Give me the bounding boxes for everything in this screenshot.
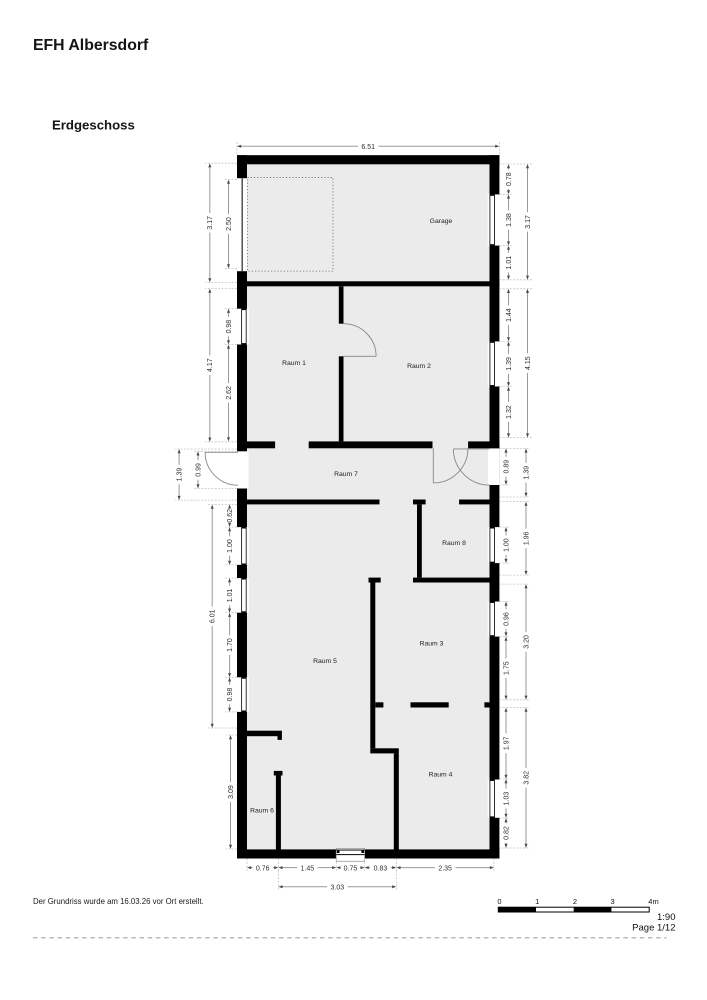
- svg-text:3.20: 3.20: [523, 635, 530, 649]
- svg-text:0.78: 0.78: [506, 172, 513, 186]
- svg-text:Raum 7: Raum 7: [334, 471, 358, 478]
- svg-text:0.98: 0.98: [226, 320, 233, 334]
- svg-text:3.82: 3.82: [523, 771, 530, 785]
- svg-text:1.00: 1.00: [227, 539, 234, 553]
- svg-text:Der Grundriss wurde am 16.03.2: Der Grundriss wurde am 16.03.26 vor Ort …: [33, 897, 204, 906]
- svg-text:0.96: 0.96: [503, 612, 510, 626]
- svg-text:3.09: 3.09: [228, 785, 235, 799]
- svg-text:1.97: 1.97: [503, 736, 510, 750]
- svg-text:Erdgeschoss: Erdgeschoss: [52, 118, 135, 133]
- svg-text:1.75: 1.75: [503, 661, 510, 675]
- svg-text:3.03: 3.03: [331, 885, 345, 892]
- svg-text:2.62: 2.62: [226, 386, 233, 400]
- svg-text:1.01: 1.01: [506, 256, 513, 270]
- svg-text:3.17: 3.17: [207, 216, 214, 230]
- svg-text:0.98: 0.98: [227, 688, 234, 702]
- svg-text:0.82: 0.82: [503, 826, 510, 840]
- svg-text:4.17: 4.17: [207, 358, 214, 372]
- svg-text:1.39: 1.39: [177, 468, 184, 482]
- svg-text:0.89: 0.89: [503, 460, 510, 474]
- svg-text:2: 2: [573, 897, 577, 906]
- svg-text:Page 1/12: Page 1/12: [632, 922, 675, 933]
- svg-text:1.70: 1.70: [227, 638, 234, 652]
- svg-text:0.62: 0.62: [227, 509, 234, 523]
- svg-text:1.00: 1.00: [503, 538, 510, 552]
- svg-text:1.38: 1.38: [506, 213, 513, 227]
- svg-text:1.39: 1.39: [506, 357, 513, 371]
- svg-text:Raum 6: Raum 6: [250, 807, 274, 814]
- svg-text:3.17: 3.17: [525, 215, 532, 229]
- svg-text:1.39: 1.39: [523, 466, 530, 480]
- svg-text:EFH Albersdorf: EFH Albersdorf: [33, 37, 149, 54]
- svg-text:1.96: 1.96: [523, 531, 530, 545]
- svg-text:1.45: 1.45: [301, 865, 315, 872]
- svg-text:1.44: 1.44: [506, 308, 513, 322]
- svg-text:0.76: 0.76: [256, 865, 270, 872]
- svg-text:Raum 3: Raum 3: [420, 641, 444, 648]
- svg-text:4.15: 4.15: [525, 356, 532, 370]
- svg-text:Raum 1: Raum 1: [282, 360, 306, 367]
- svg-text:1.03: 1.03: [503, 792, 510, 806]
- svg-text:2.35: 2.35: [438, 865, 452, 872]
- svg-text:0: 0: [497, 897, 501, 906]
- svg-text:1: 1: [535, 897, 539, 906]
- svg-text:2.50: 2.50: [226, 217, 233, 231]
- svg-text:0.83: 0.83: [374, 865, 388, 872]
- svg-text:Raum 4: Raum 4: [429, 771, 453, 778]
- svg-text:Garage: Garage: [430, 218, 453, 225]
- svg-text:Raum 5: Raum 5: [313, 658, 337, 665]
- svg-text:1.01: 1.01: [227, 588, 234, 602]
- svg-text:0.99: 0.99: [195, 463, 202, 477]
- svg-text:4m: 4m: [648, 897, 658, 906]
- svg-text:Raum 8: Raum 8: [442, 540, 466, 547]
- svg-text:6.01: 6.01: [210, 609, 217, 623]
- svg-text:6.51: 6.51: [361, 144, 375, 151]
- svg-text:Raum 2: Raum 2: [407, 363, 431, 370]
- svg-text:1.32: 1.32: [506, 405, 513, 419]
- svg-text:3: 3: [611, 897, 615, 906]
- svg-text:0.75: 0.75: [344, 865, 358, 872]
